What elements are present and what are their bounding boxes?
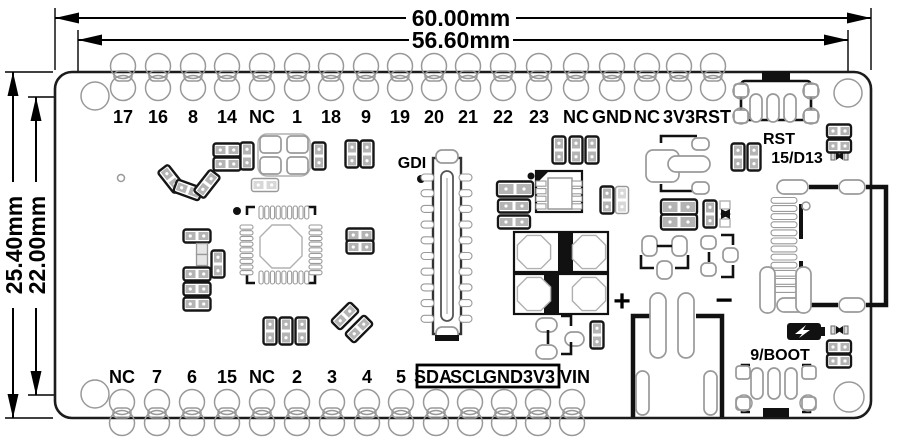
pad-dot	[590, 155, 593, 158]
pad-dot	[232, 162, 235, 165]
sd-finger	[771, 206, 797, 212]
pad-dot	[831, 359, 834, 362]
qfn-pad	[309, 242, 322, 246]
qfn-pad	[309, 236, 322, 240]
gdi-finger	[459, 253, 472, 260]
pad-dot	[365, 159, 368, 162]
pad-dot	[300, 323, 303, 326]
pin-label-top: 3V3	[663, 107, 695, 127]
pad-dot	[504, 220, 507, 223]
pin-label-bottom: NC	[109, 367, 135, 387]
qfn-pad	[265, 206, 269, 219]
gdi-finger	[459, 268, 472, 275]
drawing-canvas: 60.00mm 56.60mm 25.40mm 22.00mm 1716814N…	[0, 0, 900, 439]
qfn-pad	[309, 231, 322, 235]
qfn-pad	[240, 265, 253, 269]
pin-label-top: 23	[529, 107, 549, 127]
dim-width-inner-label: 56.60mm	[412, 27, 510, 53]
sd-finger	[771, 254, 797, 260]
qfn-pad	[259, 206, 263, 219]
pad-dot	[317, 148, 320, 151]
pin-label-top: 1	[292, 107, 302, 127]
io15-label: 15/D13	[771, 150, 823, 167]
passive-p2v	[346, 141, 359, 168]
pad-dot	[736, 149, 739, 152]
passive-lsq	[197, 255, 208, 266]
pad-dot	[189, 234, 192, 237]
passive-p2h	[827, 140, 851, 153]
qfn-pad	[299, 271, 303, 284]
qfn-pad	[240, 271, 253, 275]
pad-dot	[268, 323, 271, 326]
pad-dot	[557, 155, 560, 158]
pad-dot	[245, 161, 248, 164]
gdi-finger	[459, 205, 472, 212]
pad-dot	[605, 192, 608, 195]
pad-dot	[831, 129, 834, 132]
qfn-pad	[288, 206, 292, 219]
passive-p2v	[586, 137, 599, 164]
passive-lp2h	[252, 179, 279, 192]
qfn-pad	[309, 265, 322, 269]
pin-label-top: NC	[249, 107, 275, 127]
qfn-pad	[276, 206, 280, 219]
gdi-finger	[421, 284, 434, 291]
soic-pad	[536, 189, 546, 194]
pad-dot	[202, 302, 205, 305]
qfn-pad	[259, 271, 263, 284]
pad-dot	[300, 336, 303, 339]
passive-p2v	[704, 201, 717, 228]
qfn-pad	[288, 271, 292, 284]
pad-dot	[574, 142, 577, 145]
qfn-pad	[240, 259, 253, 263]
passive-p2v	[241, 143, 254, 170]
passive-p2v	[591, 322, 604, 349]
pad-dot	[522, 187, 525, 190]
pad-dot	[365, 146, 368, 149]
pin-label-boxed: SDA	[414, 367, 452, 387]
qfn-pad	[309, 271, 322, 275]
pad-dot	[189, 287, 192, 290]
pad-dot	[686, 205, 689, 208]
gdi-finger	[421, 205, 434, 212]
pad-dot	[843, 359, 846, 362]
pad-dot	[245, 148, 248, 151]
pin-label-top: 22	[493, 107, 513, 127]
pad-dot	[620, 205, 623, 208]
passive-lsq	[197, 244, 208, 255]
pad-dot	[219, 162, 222, 165]
gdi-finger	[459, 284, 472, 291]
ic-pin1-dot	[233, 207, 241, 215]
sd-finger	[771, 198, 797, 204]
pin-label-bottom: 3	[327, 367, 337, 387]
soic-pad	[572, 189, 582, 194]
pad-dot	[557, 142, 560, 145]
pad-dot	[219, 148, 222, 151]
pin-label-bottom: 4	[362, 367, 372, 387]
pin-label-top: 8	[188, 107, 198, 127]
passive-p2v	[553, 137, 566, 164]
boxed-pin-labels: SDASCLGND3V3	[414, 367, 555, 387]
vin-pin-label: VIN	[560, 367, 590, 387]
pad-dot	[216, 256, 219, 259]
pin-label-boxed: SCL	[450, 367, 486, 387]
pad-dot	[257, 183, 260, 186]
pad-dot	[268, 336, 271, 339]
pad-dot	[284, 336, 287, 339]
pin-label-top: 9	[361, 107, 371, 127]
pad-dot	[595, 340, 598, 343]
dim-height-inner-label: 22.00mm	[24, 196, 50, 294]
boot-button-label: 9/BOOT	[750, 347, 810, 364]
sd-finger	[771, 222, 797, 228]
qfn-pad	[309, 259, 322, 263]
gdi-finger	[421, 315, 434, 322]
qfn-pad	[240, 242, 253, 246]
passive-p2h	[214, 144, 241, 157]
soic-pad	[572, 204, 582, 209]
pin-label-top: 20	[424, 107, 444, 127]
qfn-pad	[276, 271, 280, 284]
qfn-pad	[240, 225, 253, 229]
battery-plus-label: +	[613, 285, 631, 318]
pad-dot	[350, 146, 353, 149]
pin-label-bottom: 15	[217, 367, 237, 387]
pad-dot	[365, 233, 368, 236]
qfn-pad	[293, 271, 297, 284]
pin-label-top: 18	[321, 107, 341, 127]
gdi-finger	[421, 174, 434, 181]
gdi-finger	[421, 237, 434, 244]
qfn-pad	[299, 206, 303, 219]
pad-dot	[752, 149, 755, 152]
pad-dot	[350, 159, 353, 162]
gdi-finger	[421, 221, 434, 228]
gdi-finger	[459, 190, 472, 197]
gdi-finger	[421, 253, 434, 260]
pad-dot	[708, 206, 711, 209]
gdi-finger	[459, 221, 472, 228]
qfn-pad	[270, 206, 274, 219]
passive-p2h	[827, 125, 851, 138]
pin-label-top: RST	[695, 107, 731, 127]
pin-label-top: NC	[634, 107, 660, 127]
passive-p2h	[184, 298, 211, 311]
passive-p2h	[184, 268, 211, 281]
crystal-footprint	[258, 134, 310, 176]
passive-p2v	[212, 251, 225, 278]
gdi-label: GDI	[398, 155, 426, 172]
pad-dot	[668, 220, 671, 223]
pin-label-bottom: NC	[249, 367, 275, 387]
pad-dot	[620, 192, 623, 195]
pad-dot	[504, 187, 507, 190]
passive-p2h	[498, 200, 530, 213]
pad-dot	[708, 219, 711, 222]
sd-finger	[771, 230, 797, 236]
pin-label-boxed: GND	[483, 367, 523, 387]
passive-p2h	[497, 182, 533, 197]
battery-minus-label: −	[715, 284, 733, 317]
pad-dot	[843, 345, 846, 348]
pad-dot	[736, 162, 739, 165]
passive-p2h	[347, 241, 374, 254]
pin-label-bottom: 6	[187, 367, 197, 387]
passive-p2h	[214, 158, 241, 171]
gdi-finger	[421, 190, 434, 197]
pad-dot	[520, 220, 523, 223]
pin-label-bottom: 5	[396, 367, 406, 387]
diode-footprint	[720, 201, 731, 227]
qfn-pad	[309, 225, 322, 229]
passive-p2h	[498, 216, 530, 229]
pad-dot	[520, 204, 523, 207]
pad-dot	[317, 161, 320, 164]
qfn-pad	[309, 248, 322, 252]
pad-dot	[831, 345, 834, 348]
gdi-finger	[459, 300, 472, 307]
small-pad	[197, 244, 208, 255]
gdi-finger	[421, 300, 434, 307]
pad-dot	[595, 327, 598, 330]
passive-p2h	[184, 230, 211, 243]
pin-label-top: 16	[148, 107, 168, 127]
gdi-finger	[459, 315, 472, 322]
passive-lp2v	[616, 187, 629, 214]
soic-pad	[572, 196, 582, 201]
qfn-pad	[293, 206, 297, 219]
passive-p2v	[361, 141, 374, 168]
passive-p2h	[661, 200, 697, 215]
passive-p2v	[748, 144, 761, 171]
pad-dot	[352, 233, 355, 236]
passive-p2h	[827, 341, 851, 354]
pad-dot	[843, 144, 846, 147]
qfn-pad	[240, 236, 253, 240]
gdi-finger	[421, 268, 434, 275]
sd-finger	[771, 214, 797, 220]
pad-dot	[574, 155, 577, 158]
gdi-finger	[459, 237, 472, 244]
sd-finger	[771, 246, 797, 252]
passive-p2h	[184, 283, 211, 296]
pcb-dimension-drawing: 60.00mm 56.60mm 25.40mm 22.00mm 1716814N…	[0, 0, 900, 439]
pad-dot	[605, 205, 608, 208]
passive-p2v	[313, 143, 326, 170]
pin-label-top: 21	[458, 107, 478, 127]
pin-label-top: 17	[113, 107, 133, 127]
qfn-pad	[240, 231, 253, 235]
rst-button-label: RST	[763, 131, 795, 148]
passive-p2v	[296, 318, 309, 345]
soic-pad	[536, 181, 546, 186]
pad-dot	[202, 287, 205, 290]
qfn-pad	[305, 271, 309, 284]
pin-label-boxed: 3V3	[523, 367, 555, 387]
capacitor-footprint-1	[514, 232, 608, 272]
qfn-pad	[240, 248, 253, 252]
qfn-pad	[305, 206, 309, 219]
pad-dot	[590, 142, 593, 145]
pin-label-top: 14	[217, 107, 237, 127]
pad-dot	[216, 269, 219, 272]
pad-dot	[232, 148, 235, 151]
pad-dot	[752, 162, 755, 165]
qfn-pad	[270, 271, 274, 284]
small-pad	[197, 255, 208, 266]
pad-dot	[843, 129, 846, 132]
charge-icon	[787, 323, 825, 340]
passive-p2v	[264, 318, 277, 345]
soic-pad	[572, 181, 582, 186]
pad-dot	[831, 144, 834, 147]
pin-label-top: 19	[390, 107, 410, 127]
pad-dot	[202, 272, 205, 275]
pad-dot	[352, 245, 355, 248]
passive-p2h	[661, 215, 697, 230]
qfn-pad	[240, 254, 253, 258]
pad-dot	[668, 205, 671, 208]
qfn-pad	[282, 271, 286, 284]
qfn-pad	[309, 254, 322, 258]
soic-pad	[536, 204, 546, 209]
passive-p2v	[570, 137, 583, 164]
pad-dot	[504, 204, 507, 207]
pad-dot	[189, 272, 192, 275]
pad-dot	[365, 245, 368, 248]
passive-p2v	[732, 144, 745, 171]
passive-p2v	[601, 187, 614, 214]
pin-label-bottom: 7	[152, 367, 162, 387]
pin-label-bottom: 2	[292, 367, 302, 387]
sd-finger	[771, 238, 797, 244]
pin-label-top: GND	[592, 107, 632, 127]
qfn-pad	[265, 271, 269, 284]
pad-dot	[189, 302, 192, 305]
passive-p2h	[827, 355, 851, 368]
passive-p2v	[280, 318, 293, 345]
qfn-pad	[282, 206, 286, 219]
sd-finger	[771, 262, 797, 268]
gdi-finger	[459, 174, 472, 181]
pin-label-top: NC	[563, 107, 589, 127]
pad-dot	[202, 234, 205, 237]
pad-dot	[686, 220, 689, 223]
pad-dot	[284, 323, 287, 326]
soic-pad	[536, 196, 546, 201]
pad-dot	[270, 183, 273, 186]
